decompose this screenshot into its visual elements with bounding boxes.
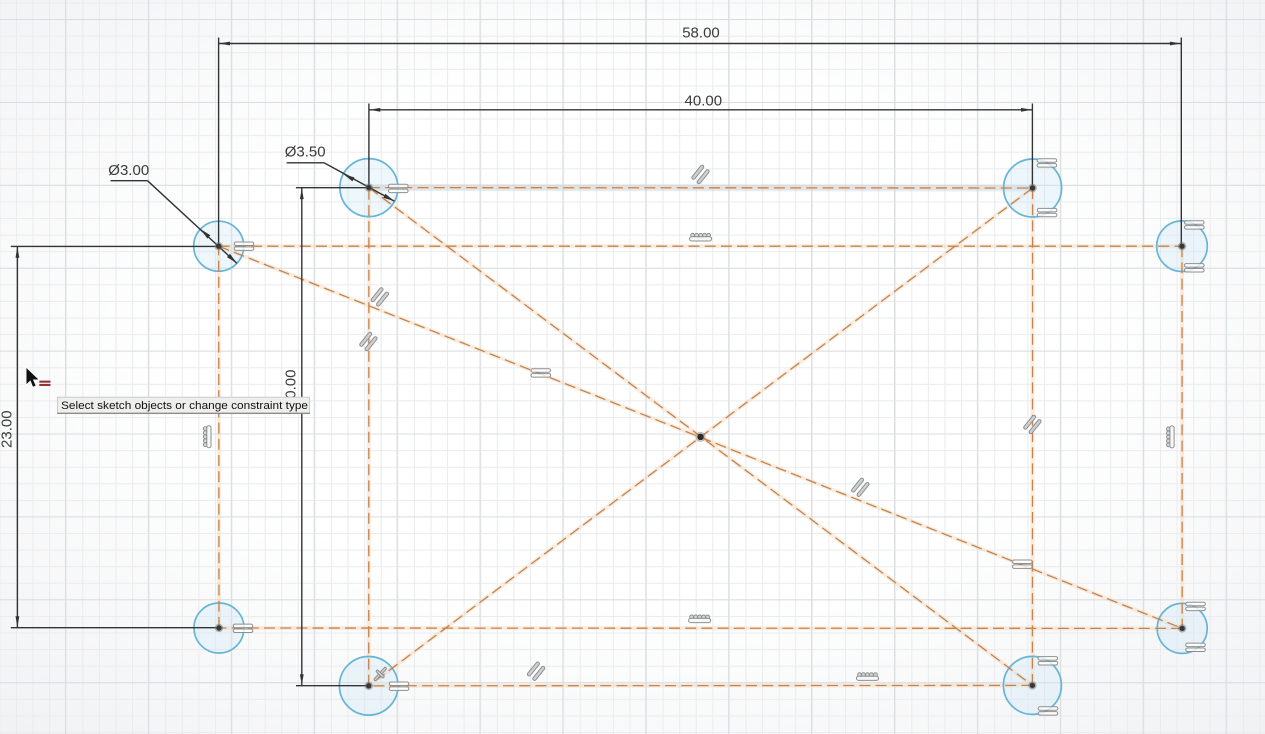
svg-text:Select sketch objects or chang: Select sketch objects or change constrai… bbox=[61, 400, 308, 412]
svg-text:23.00: 23.00 bbox=[0, 410, 15, 448]
svg-text:40.00: 40.00 bbox=[685, 92, 723, 109]
svg-text:Ø3.50: Ø3.50 bbox=[285, 144, 326, 161]
svg-text:58.00: 58.00 bbox=[682, 24, 720, 41]
svg-text:Ø3.00: Ø3.00 bbox=[108, 162, 149, 179]
